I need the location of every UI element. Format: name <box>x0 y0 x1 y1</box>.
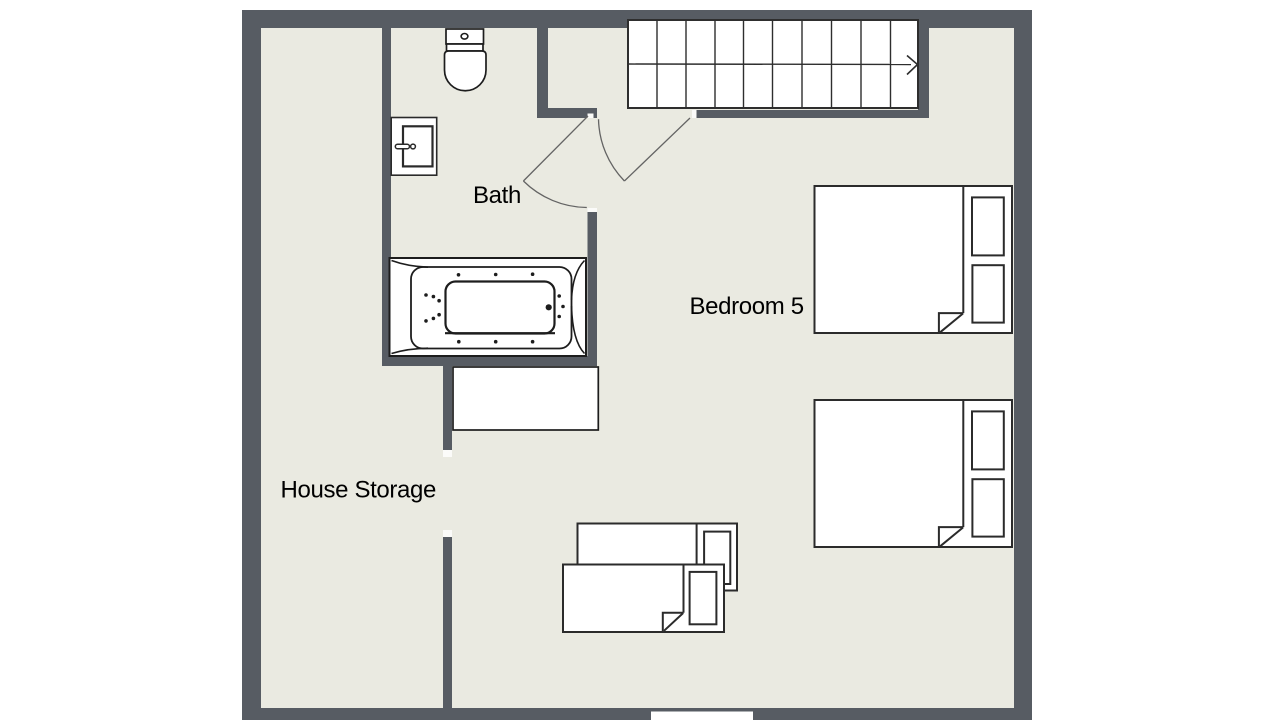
svg-text:House Storage: House Storage <box>281 477 437 504</box>
svg-text:Bedroom 5: Bedroom 5 <box>690 293 804 320</box>
svg-text:Bath: Bath <box>473 182 521 209</box>
